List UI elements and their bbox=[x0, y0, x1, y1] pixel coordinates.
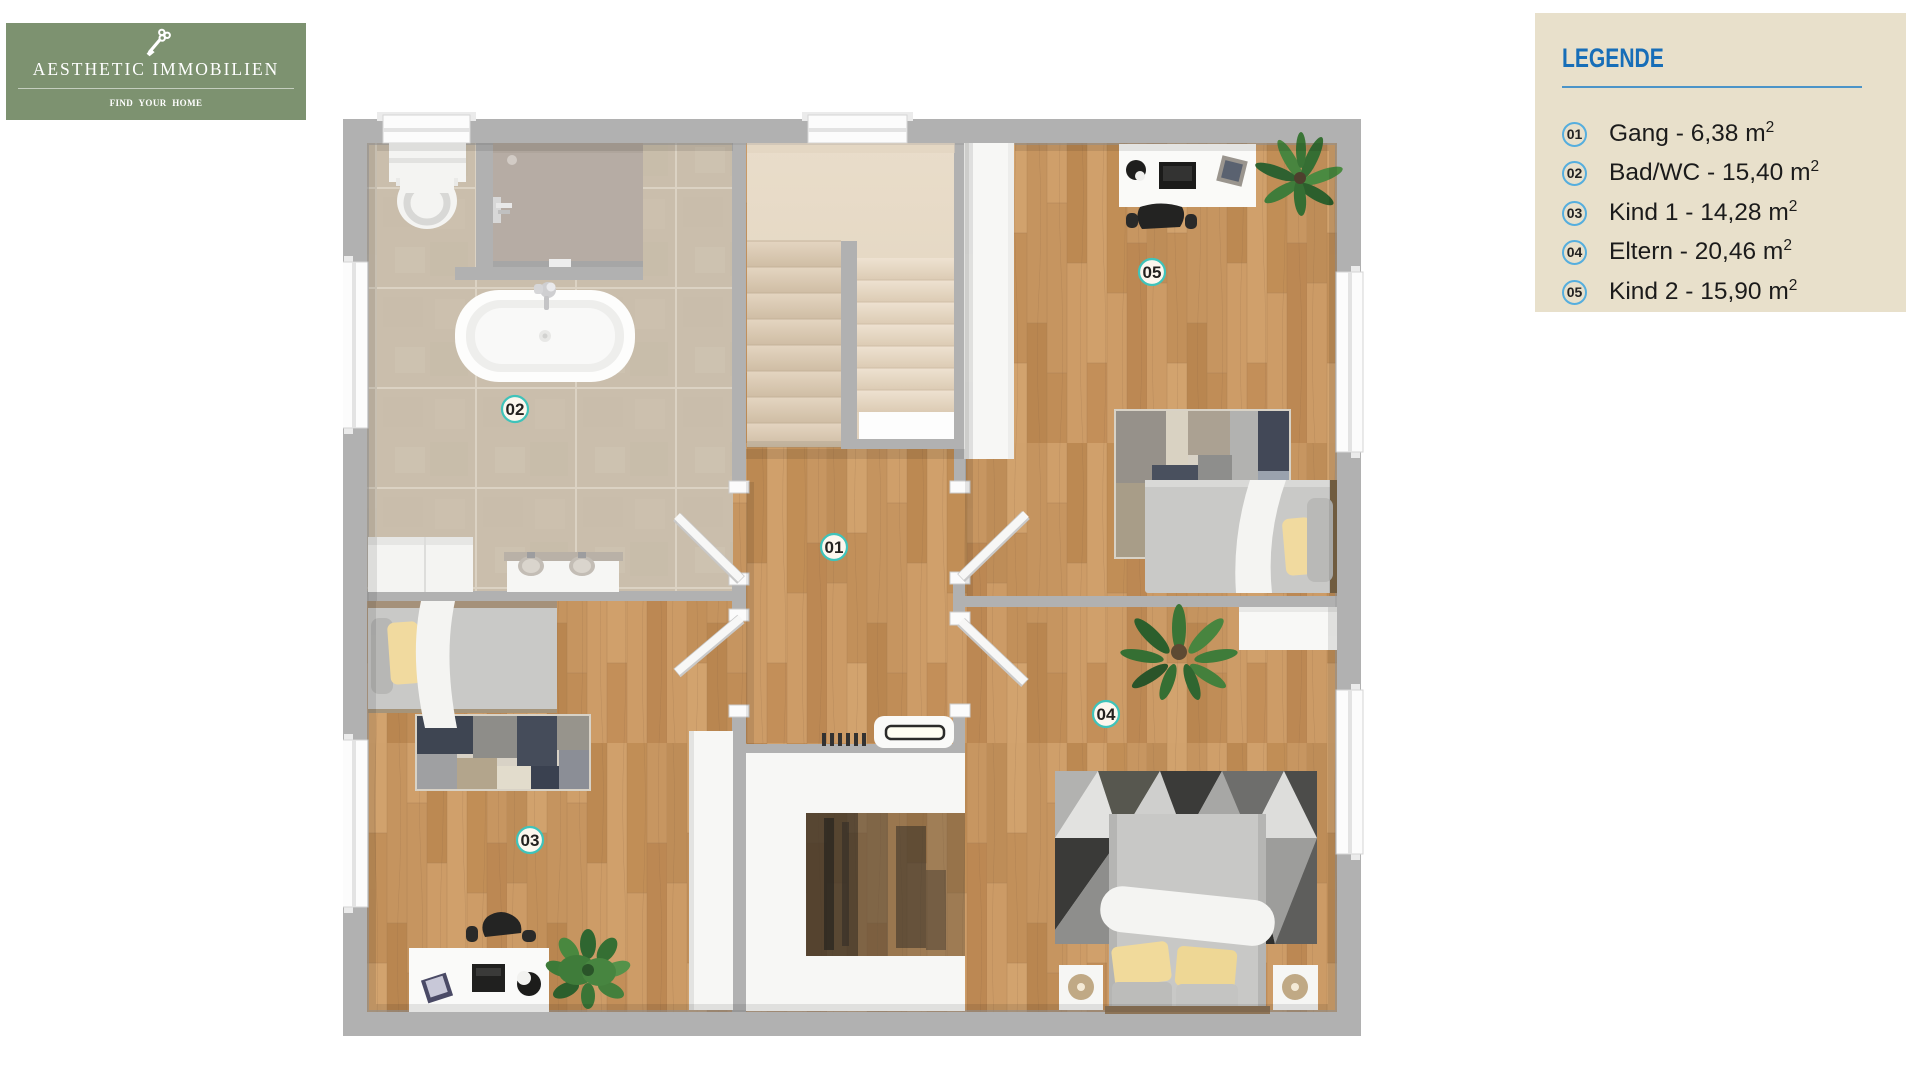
svg-text:03: 03 bbox=[521, 831, 540, 850]
svg-text:04: 04 bbox=[1097, 705, 1116, 724]
svg-text:05: 05 bbox=[1143, 263, 1162, 282]
svg-text:01: 01 bbox=[825, 538, 844, 557]
svg-text:02: 02 bbox=[506, 400, 525, 419]
